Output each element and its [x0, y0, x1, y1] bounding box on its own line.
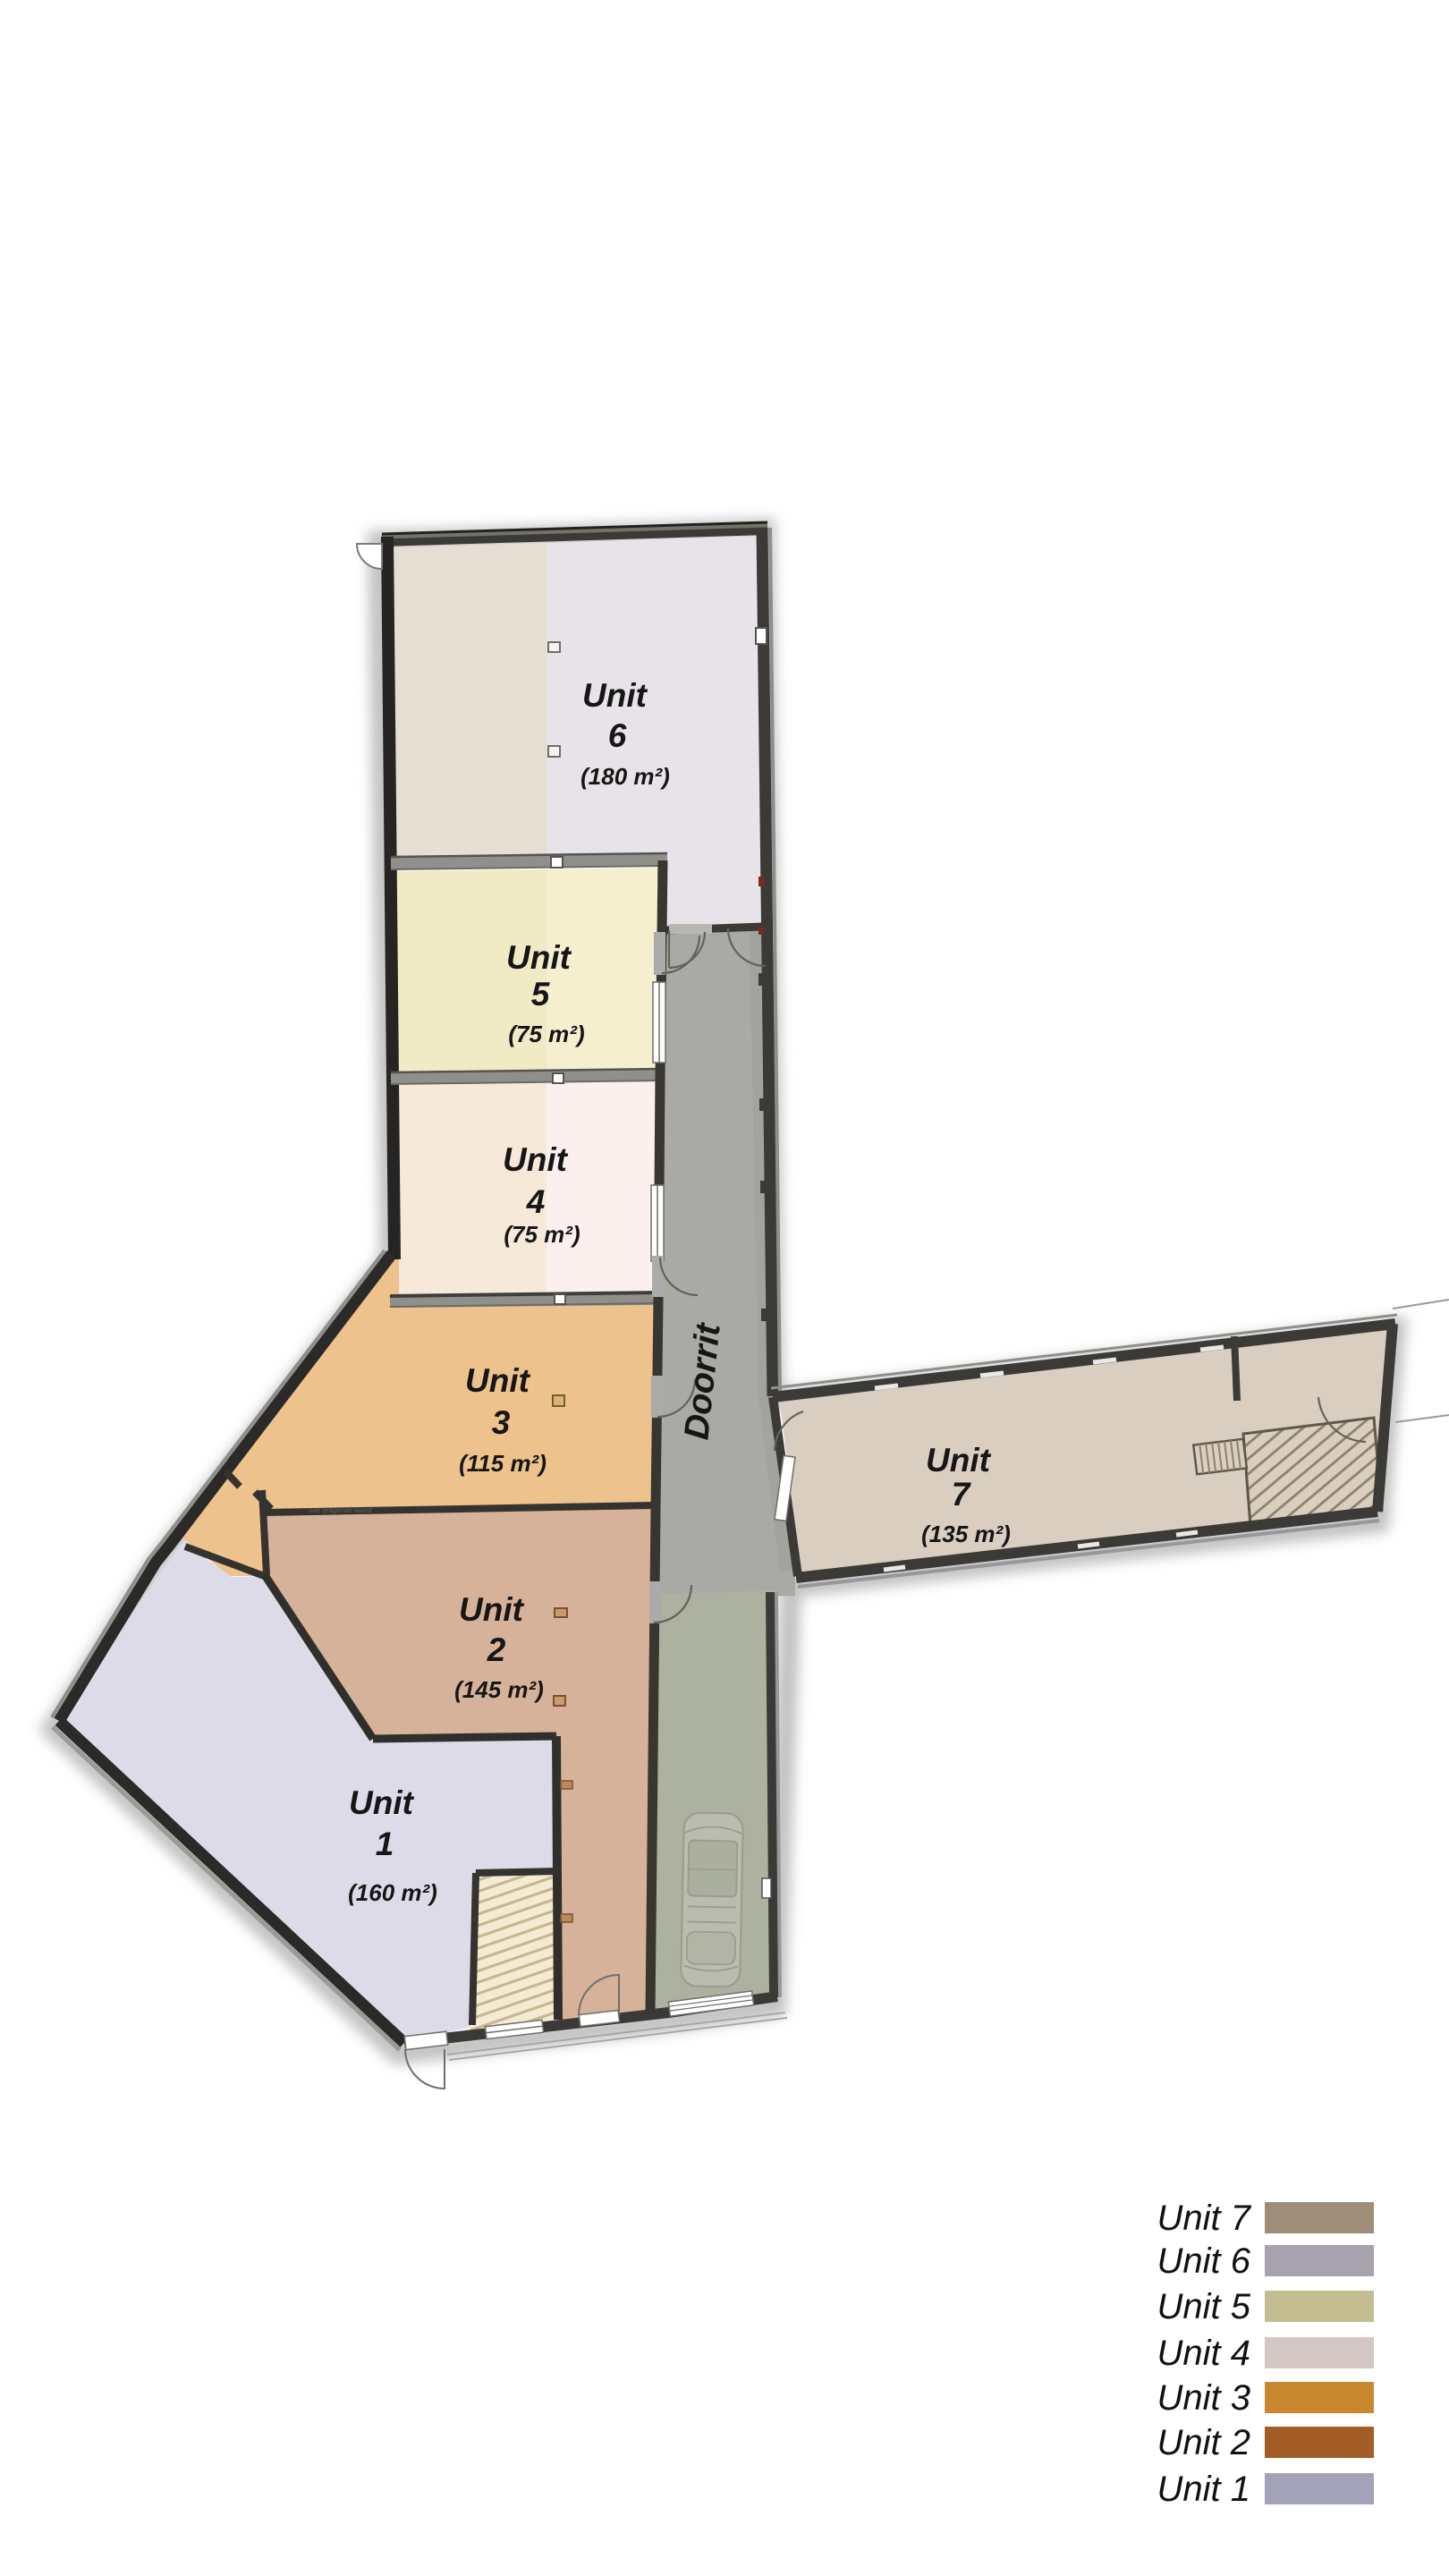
svg-text:Unit: Unit: [349, 1784, 415, 1821]
svg-text:1: 1: [376, 1826, 394, 1862]
svg-text:(180 m²): (180 m²): [580, 763, 670, 790]
svg-text:Unit: Unit: [465, 1362, 531, 1399]
svg-text:6: 6: [608, 717, 627, 754]
svg-text:5: 5: [531, 976, 551, 1013]
svg-text:7: 7: [952, 1476, 972, 1513]
svg-text:Unit: Unit: [506, 939, 572, 976]
svg-text:niet dragende wand: niet dragende wand: [309, 1506, 372, 1514]
svg-text:3: 3: [492, 1404, 511, 1441]
svg-text:Unit: Unit: [582, 677, 648, 714]
svg-text:(145 m²): (145 m²): [454, 1676, 544, 1703]
svg-text:Unit 6: Unit 6: [1157, 2241, 1251, 2281]
svg-text:Unit: Unit: [926, 1442, 992, 1479]
svg-text:4: 4: [526, 1183, 546, 1220]
svg-text:Unit 3: Unit 3: [1157, 2378, 1251, 2418]
svg-text:Unit 5: Unit 5: [1157, 2287, 1251, 2326]
svg-text:Unit 1: Unit 1: [1157, 2470, 1251, 2509]
svg-text:Unit 4: Unit 4: [1157, 2334, 1251, 2373]
svg-text:Unit 7: Unit 7: [1157, 2199, 1252, 2238]
svg-text:(135 m²): (135 m²): [921, 1521, 1011, 1547]
svg-text:Unit: Unit: [503, 1141, 569, 1178]
svg-text:(115 m²): (115 m²): [459, 1450, 547, 1477]
svg-text:(75 m²): (75 m²): [504, 1221, 580, 1248]
svg-text:(75 m²): (75 m²): [508, 1021, 584, 1047]
svg-text:Unit: Unit: [459, 1591, 525, 1628]
svg-text:(160 m²): (160 m²): [348, 1879, 437, 1906]
svg-text:2: 2: [487, 1631, 506, 1668]
svg-text:Unit 2: Unit 2: [1157, 2423, 1251, 2462]
